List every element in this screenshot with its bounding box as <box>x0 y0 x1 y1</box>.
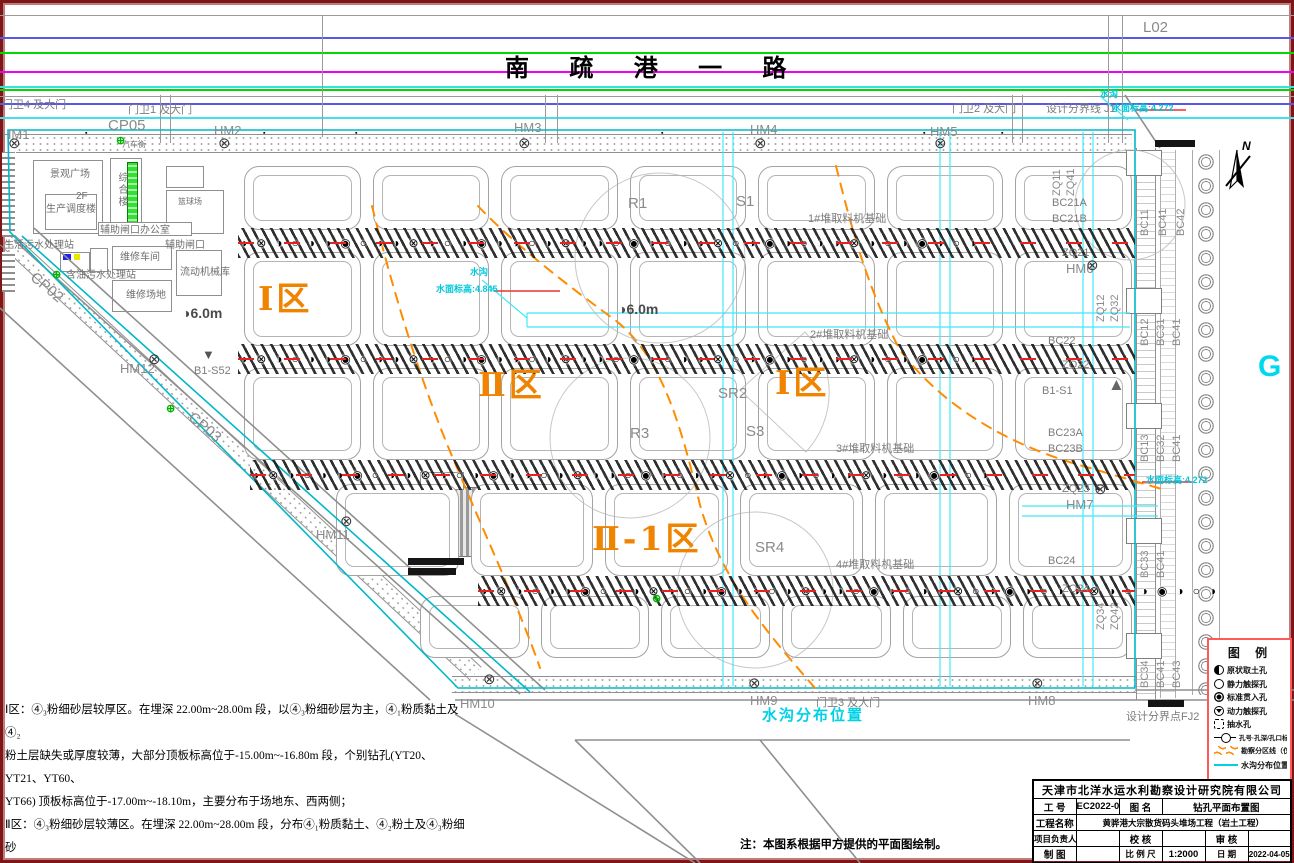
map-label: 水面标高:4.272 <box>1146 476 1208 485</box>
scale-value: 1:2000 <box>1162 847 1205 863</box>
map-label: ZQ24 <box>1062 584 1090 595</box>
map-label: B1-S52 <box>194 366 231 377</box>
note-line: 粉土层缺失或厚度较薄，大部分顶板标高位于-15.00m~-16.80m 段，个别… <box>5 745 465 791</box>
map-label: SR2 <box>718 386 747 401</box>
drawing-sheet: ◑⊗◑○◑◑◉○◑◑⊗◑○◑◉◑◑○◑⊗◑◑○◉◑○◑◑⊗○◑◉◑○◑◑⊗◑○◑… <box>0 0 1294 863</box>
map-label: 水沟 <box>470 268 488 277</box>
zone-notes: Ⅰ区：④₃粉细砂层较厚区。在埋深 22.00m~28.00m 段，以④₃粉细砂层… <box>5 699 465 863</box>
map-label: HM8 <box>1028 694 1055 707</box>
map-label: 篮球场 <box>178 198 202 206</box>
review-value <box>1248 831 1291 847</box>
map-label: BC21A <box>1052 198 1087 209</box>
map-label: ZQ23 <box>1062 484 1090 495</box>
legend-item: 标准贯入孔 <box>1214 691 1287 705</box>
hm-marker-icon: ⊗ <box>340 514 353 529</box>
survey-point-icon: ⊕ <box>166 404 175 415</box>
map-label: BC23A <box>1048 428 1083 439</box>
map-label: ZQ34 <box>1096 602 1107 630</box>
map-label: BC34 <box>1140 660 1151 688</box>
map-label: 景观广场 <box>50 170 90 180</box>
zone-1-label: Ⅰ区 <box>258 282 312 315</box>
filled-circle-icon <box>1214 692 1224 702</box>
hm-marker-icon: ⊗ <box>218 136 231 151</box>
north-label: N <box>1242 140 1251 152</box>
map-label: G <box>1258 352 1281 382</box>
company-name: 天津市北洋水运水利勘察设计研究院有限公司 <box>1033 780 1291 799</box>
annotation-sample-icon <box>1214 733 1236 742</box>
map-label: BC33 <box>1140 550 1151 578</box>
map-label: HM7 <box>1066 498 1093 511</box>
survey-point-icon: ⊕ <box>652 594 661 605</box>
zone-2-label: Ⅱ区 <box>478 368 545 401</box>
legend-item: 动力触探孔 <box>1214 705 1287 719</box>
map-label: BC13 <box>1140 434 1151 462</box>
map-label: BC41 <box>1156 660 1167 688</box>
legend-item: 静力触探孔 <box>1214 678 1287 692</box>
map-label: ▪ <box>263 130 265 137</box>
open-circle-icon <box>1214 679 1224 689</box>
map-label: ZQ42 <box>1110 602 1121 630</box>
map-label: S1 <box>736 194 754 209</box>
pm-label: 项目负责人 <box>1033 831 1076 847</box>
project-value: 黄骅港大宗散货码头堆场工程（岩土工程） <box>1076 815 1291 831</box>
hm-marker-icon: ⊗ <box>934 136 947 151</box>
check-value <box>1162 831 1205 847</box>
date-label: 日 期 <box>1205 847 1248 863</box>
check-label: 校 核 <box>1119 831 1162 847</box>
map-label: ▪ <box>85 130 87 137</box>
map-label: 设计分界点FJ2 <box>1126 712 1199 723</box>
dashed-square-icon <box>1214 719 1224 729</box>
map-label: BC32 <box>1156 434 1167 462</box>
map-label: SR4 <box>755 540 784 555</box>
hm-marker-icon: ⊗ <box>754 136 767 151</box>
ditch-line-icon <box>1214 764 1238 766</box>
map-label: 含油污水处理站 <box>66 271 136 281</box>
note-line: YT66) 顶板标高位于-17.00m~-18.10m，主要分布于场地东、西两侧… <box>5 791 465 814</box>
hm-marker-icon: ⊗ <box>8 136 21 151</box>
zone-boundary-line-icon <box>1214 746 1238 755</box>
map-label: 2F <box>76 192 88 202</box>
gate4-label: 门卫4 及大门 <box>2 100 66 111</box>
map-label: HM10 <box>460 697 495 710</box>
date-value: 2022-04-05 <box>1248 847 1291 863</box>
title-block: 天津市北洋水运水利勘察设计研究院有限公司 工 号 EC2022-0901-1 图… <box>1032 779 1292 861</box>
map-label: ▪ <box>661 130 663 137</box>
map-label: CP03 <box>186 410 224 446</box>
map-label: R3 <box>630 426 649 441</box>
legend-item: 原状取土孔 <box>1214 664 1287 678</box>
note-line: Ⅰ区：④₃粉细砂层较厚区。在埋深 22.00m~28.00m 段，以④₃粉细砂层… <box>5 699 465 745</box>
road-name: 南 疏 港 一 路 <box>505 56 802 80</box>
map-label: R1 <box>628 196 647 211</box>
draft-label: 制 图 <box>1033 847 1076 863</box>
map-label: 水面标高:4.845 <box>436 285 498 294</box>
map-label: BC43 <box>1172 660 1183 688</box>
map-label: ▪ <box>923 130 925 137</box>
map-label: 设计分界线 J1 <box>1046 104 1116 115</box>
map-label: ZQ41 <box>1066 168 1077 196</box>
project-label: 工程名称 <box>1033 815 1076 831</box>
map-label: BC41 <box>1156 550 1167 578</box>
zone-1b-label: Ⅰ区 <box>775 366 829 399</box>
map-label: 水面标高:4.272 <box>1112 104 1174 113</box>
map-label: ◑6.0m <box>182 306 222 320</box>
map-label: BC24 <box>1048 556 1076 567</box>
map-label: BC12 <box>1140 318 1151 346</box>
draft-value <box>1076 847 1119 863</box>
review-label: 审 核 <box>1205 831 1248 847</box>
survey-point-icon: ⊕ <box>52 270 61 281</box>
legend-item: 孔号·孔深/孔口标高·水位标高 <box>1214 732 1287 746</box>
pm-value <box>1076 831 1119 847</box>
map-label: ZQ12 <box>1096 294 1107 322</box>
hm-marker-icon: ⊗ <box>1031 676 1044 691</box>
map-label: BC21B <box>1052 214 1087 225</box>
map-label: ZQ11 <box>1052 169 1063 196</box>
map-label: ZQ32 <box>1110 294 1121 322</box>
legend-item: 勘察分区线（仅供参考） <box>1214 745 1287 759</box>
scale-label: 比 例 尺 <box>1119 847 1162 863</box>
map-label: 生活污水处理站 <box>4 241 74 251</box>
hm-marker-icon: ⊗ <box>1086 258 1099 273</box>
drawing-name-label: 图 名 <box>1119 799 1162 815</box>
survey-point-icon: ⊕ <box>116 136 125 147</box>
map-label: 汽车衡 <box>122 141 146 149</box>
hm-marker-icon: ⊗ <box>518 136 531 151</box>
zone-2-1-label: Ⅱ-1区 <box>592 522 701 555</box>
map-label: 4#堆取料机基础 <box>836 560 914 571</box>
note-line: Ⅱ区：④₃粉细砂层较薄区。在埋深 22.00m~28.00m 段，分布④₁粉质黏… <box>5 814 465 860</box>
map-label: 流动机械库 <box>180 268 230 278</box>
map-label: 水沟 <box>1100 90 1118 99</box>
gate1-label: 门卫1 及大门 <box>128 105 192 116</box>
hm-marker-icon: ⊗ <box>1094 482 1107 497</box>
map-label: BC41 <box>1172 318 1183 346</box>
map-label: 生产调度楼 <box>46 205 96 215</box>
legend-title: 图 例 <box>1214 644 1287 661</box>
legend-box: 图 例 原状取土孔 静力触探孔 标准贯入孔 动力触探孔 抽水孔 孔号·孔深/孔口… <box>1207 638 1292 782</box>
map-label: 2#堆取料机基础 <box>810 330 888 341</box>
hm-marker-icon: ⊗ <box>148 352 161 367</box>
map-label: 维修车间 <box>120 253 160 263</box>
map-label: ▪ <box>355 130 357 137</box>
hm-marker-icon: ⊗ <box>483 672 496 687</box>
map-label: L02 <box>1143 20 1168 35</box>
map-label: S3 <box>746 424 764 439</box>
legend-item: 抽水孔 <box>1214 718 1287 732</box>
gate2-label: 门卫2 及大门 <box>952 104 1016 115</box>
drawing-note: 注：本图系根据甲方提供的平面图绘制。 <box>740 840 947 852</box>
map-label: 维修场地 <box>126 291 166 301</box>
map-label: ▪ <box>1001 130 1003 137</box>
job-no-value: EC2022-0901-1 <box>1076 799 1119 815</box>
circle-triangle-icon <box>1214 706 1224 716</box>
map-label: BC22 <box>1048 336 1076 347</box>
map-label: ▲ <box>1108 376 1125 393</box>
drawing-name-value: 钻孔平面布置图 <box>1162 799 1291 815</box>
map-label: HM9 <box>750 694 777 707</box>
job-no-label: 工 号 <box>1033 799 1076 815</box>
map-label: 辅助闸口办公室 <box>100 226 170 236</box>
hm-marker-icon: ⊗ <box>748 676 761 691</box>
map-label: BC41 <box>1172 434 1183 462</box>
ditch-location-label: 水沟分布位置 <box>762 708 864 723</box>
map-label: 3#堆取料机基础 <box>836 444 914 455</box>
map-label: HM3 <box>514 121 541 134</box>
map-label: ◑6.0m <box>618 302 658 316</box>
map-label: 1#堆取料机基础 <box>808 214 886 225</box>
legend-item: 水沟分布位置 <box>1214 759 1287 773</box>
map-label: 综合楼 <box>116 172 126 208</box>
map-label: ▼ <box>202 348 215 361</box>
map-label: BC31 <box>1156 318 1167 346</box>
map-label: BC11 <box>1140 209 1151 236</box>
map-label: ZQ22 <box>1062 360 1090 371</box>
map-label: CP05 <box>108 118 146 133</box>
map-label: 辅助闸口 <box>165 241 205 251</box>
map-label: B1-S1 <box>1042 386 1073 397</box>
map-label: BC41 <box>1158 208 1169 236</box>
map-label: BC42 <box>1176 208 1187 236</box>
half-filled-circle-icon <box>1214 665 1224 675</box>
map-label: BC23B <box>1048 444 1083 455</box>
